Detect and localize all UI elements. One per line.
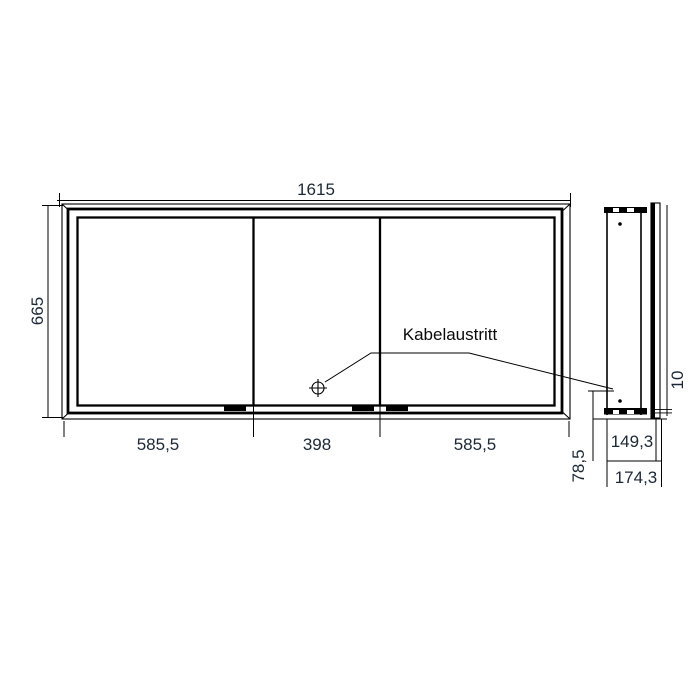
side-top-rail [604, 207, 647, 213]
dim-text-overall-height: 665 [28, 297, 47, 325]
dim-text-cable-outlet-offset: 78,5 [569, 449, 588, 482]
screw-dot-bottom [618, 399, 622, 403]
dim-text-middle-door: 398 [303, 435, 331, 454]
technical-drawing: Kabelaustritt 1615 665 585,5 398 585,5 [0, 0, 700, 700]
handle-left-door [224, 407, 246, 412]
kabelaustritt-label: Kabelaustritt [403, 325, 498, 344]
mirror-door-face [651, 203, 655, 418]
dim-depths: 149,3 174,3 [593, 419, 667, 487]
side-top-rail-notch [627, 208, 634, 212]
drawing-canvas: Kabelaustritt 1615 665 585,5 398 585,5 [0, 0, 700, 700]
door-area [78, 218, 555, 406]
miter-bottom-right [563, 413, 570, 420]
side-top-rail-notch [613, 208, 619, 212]
dim-text-body-depth: 149,3 [611, 432, 654, 451]
side-bottom-rail [604, 408, 647, 415]
side-view [604, 203, 660, 418]
dim-overall-height: 665 [28, 206, 63, 418]
dim-text-door-overhang: 10 [668, 371, 687, 390]
miter-bottom-left [62, 413, 69, 420]
dim-text-overall-depth: 174,3 [615, 468, 658, 487]
dim-text-right-door: 585,5 [454, 435, 497, 454]
front-view [62, 204, 570, 419]
side-bottom-rail-notch [613, 410, 619, 414]
screw-dot-top [618, 222, 622, 226]
dim-overall-width: 1615 [57, 180, 571, 207]
miter-top-left [62, 204, 69, 211]
front-outer-edge [62, 204, 570, 419]
handle-middle-door [352, 407, 374, 412]
dim-text-overall-width: 1615 [297, 180, 335, 199]
dim-text-left-door: 585,5 [137, 435, 180, 454]
side-bottom-rail-notch [627, 410, 634, 414]
cable-outlet-callout: Kabelaustritt [309, 325, 613, 397]
miter-top-right [563, 204, 570, 211]
handle-right-door [386, 407, 408, 412]
